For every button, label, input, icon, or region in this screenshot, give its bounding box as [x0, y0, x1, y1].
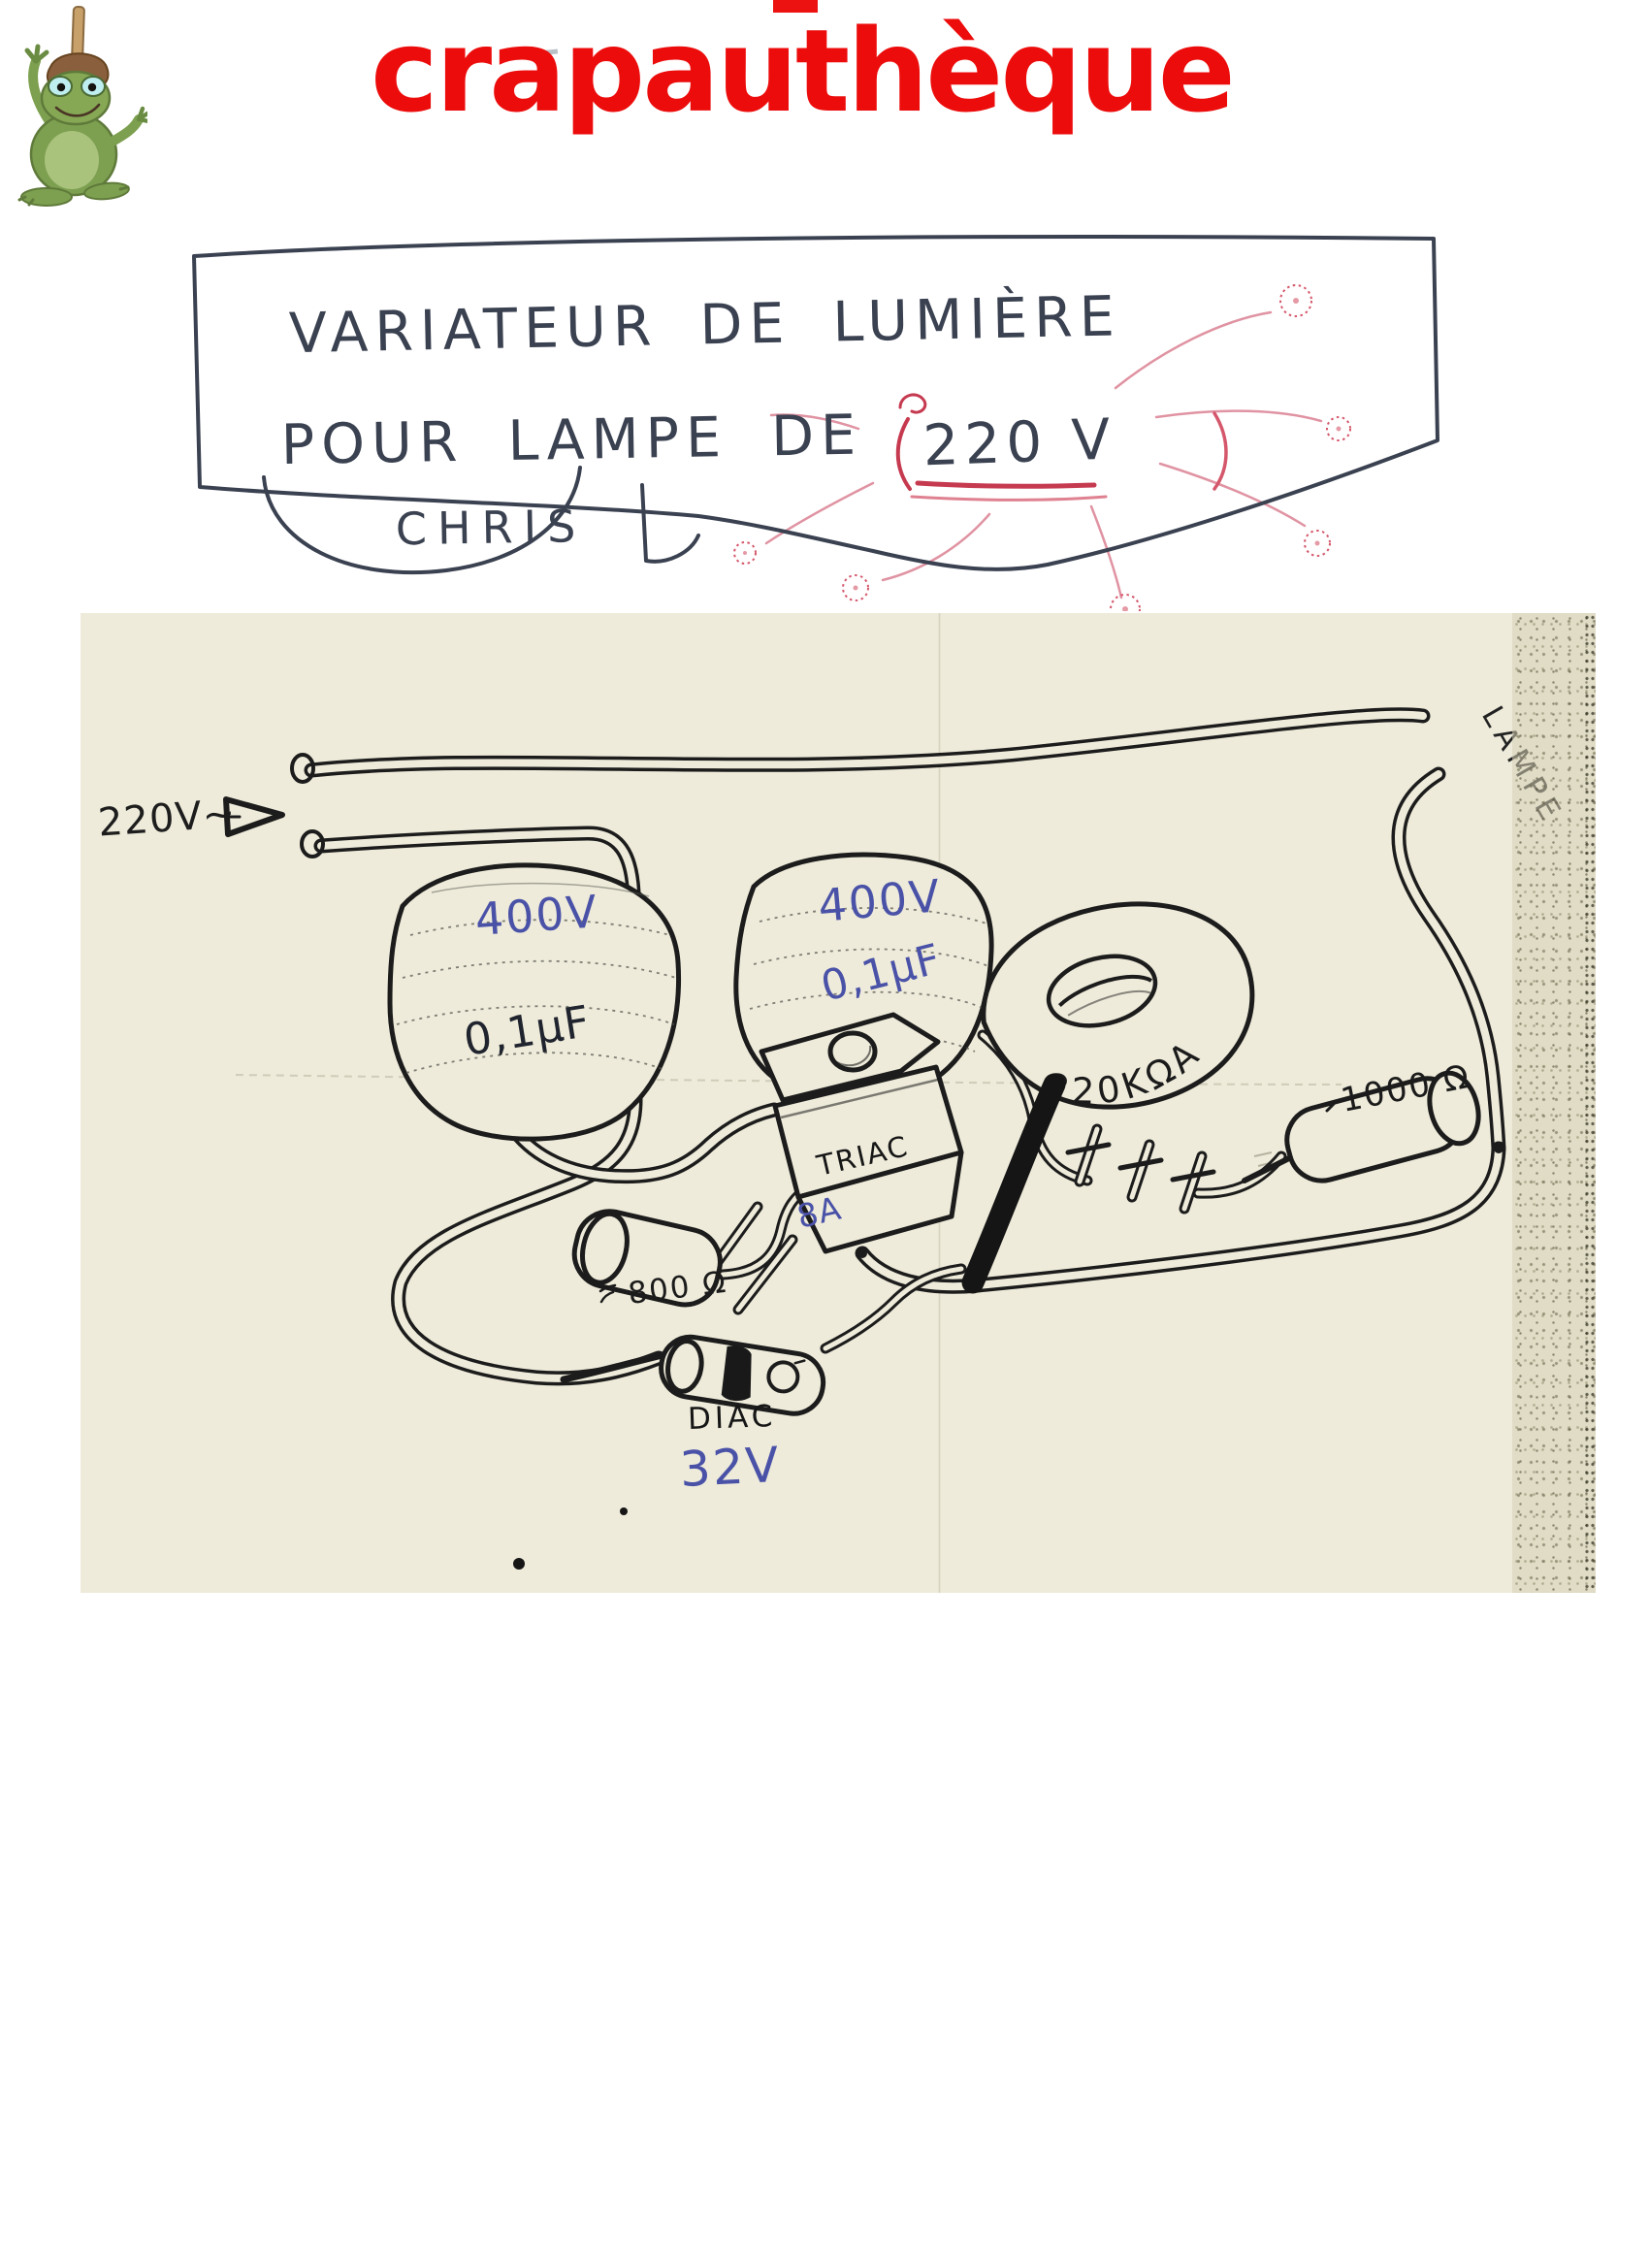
scan-edge — [1584, 613, 1596, 1593]
scanned-page: crapauthèque — [0, 0, 1649, 2268]
ink-dot — [620, 1507, 628, 1515]
capacitor1: 400V 0,1µF — [390, 865, 679, 1139]
signature-text: CHRIS — [395, 500, 586, 555]
flag-notch — [642, 485, 698, 562]
resistor-1000: 1000 Ω — [1245, 1057, 1486, 1188]
pot-pins — [1068, 1129, 1213, 1209]
input-voltage-text: 220V~ — [97, 792, 238, 846]
title-box-outline — [194, 237, 1438, 569]
frog-belly — [45, 131, 99, 189]
frog-arm-out — [111, 119, 139, 143]
ink-dot — [513, 1558, 525, 1570]
cap2-voltage-label: 400V — [816, 869, 944, 932]
frog-fingers2 — [139, 109, 147, 121]
diac-voltage-label: 32V — [678, 1437, 782, 1498]
potentiometer: 220KΩA — [963, 876, 1274, 1282]
site-title[interactable]: crapauthèque — [371, 14, 1244, 128]
resistor-800: 800 Ω — [567, 1205, 728, 1312]
solder-blob — [857, 1248, 867, 1258]
circuit-drawing: 400V 0,1µF 400V 0,1µF TRI — [81, 613, 1596, 1593]
frog-fingers — [27, 47, 47, 61]
wire-mains-top — [292, 715, 1423, 782]
sketch-title-line2: POUR LAMPE DE — [280, 404, 862, 477]
triac: TRIAC 8A — [761, 1015, 961, 1251]
red-underline — [918, 483, 1094, 486]
title-sketch: VARIATEUR DE LUMIÈRE POUR LAMPE DE 220 V… — [136, 223, 1465, 611]
diac-name-label: DIAC — [687, 1399, 777, 1437]
cap1-voltage-label: 400V — [473, 885, 600, 946]
diac: DIAC 32V — [657, 1333, 827, 1498]
frog-mascot-logo[interactable] — [12, 5, 147, 226]
mains-input-label: 220V~ — [97, 792, 282, 846]
sketch-title-line1: VARIATEUR DE LUMIÈRE — [288, 282, 1121, 366]
pot-shaft — [973, 1085, 1054, 1282]
sketch-title-voltage: 220 V — [921, 405, 1116, 478]
solder-blob — [1494, 1144, 1503, 1153]
schematic-paper: 400V 0,1µF 400V 0,1µF TRI — [81, 613, 1596, 1593]
